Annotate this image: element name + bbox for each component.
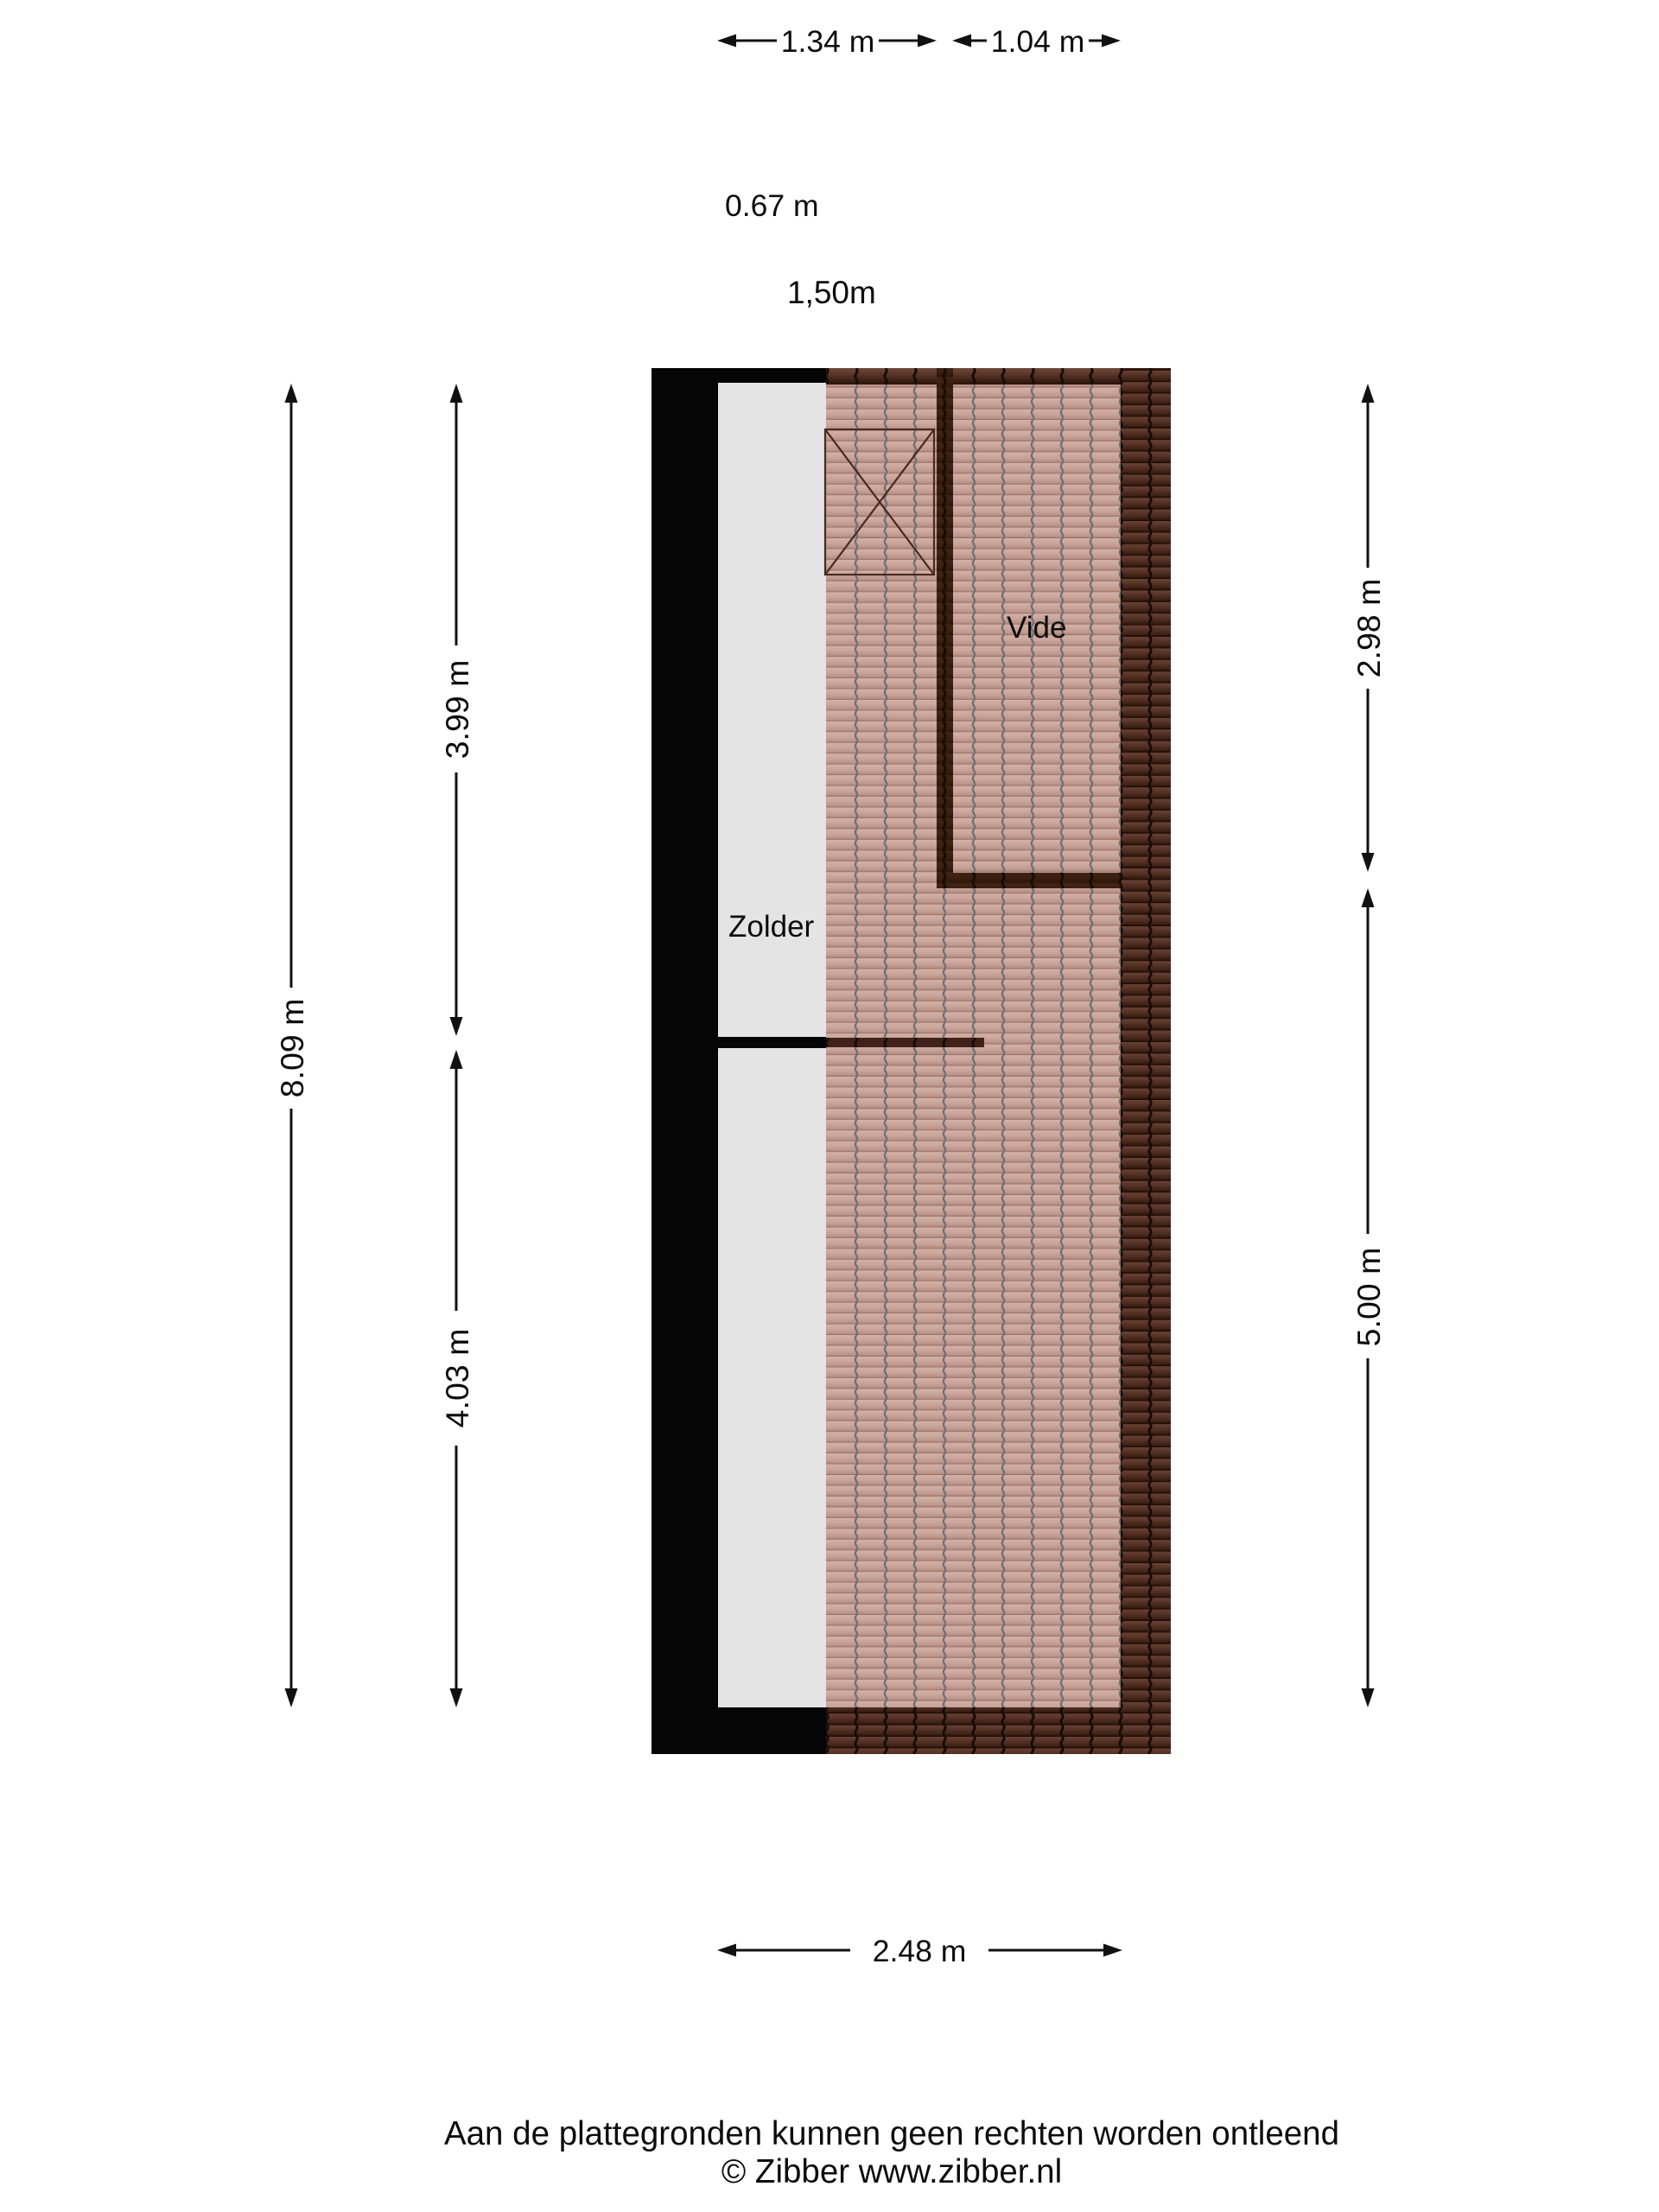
svg-text:Zolder: Zolder — [728, 910, 815, 944]
svg-text:3.99 m: 3.99 m — [439, 660, 475, 760]
svg-text:Vide: Vide — [1007, 611, 1066, 645]
svg-text:1,50m: 1,50m — [787, 275, 876, 310]
svg-text:4.03 m: 4.03 m — [439, 1329, 475, 1428]
svg-text:2.48 m: 2.48 m — [873, 1934, 967, 1968]
svg-text:Aan de plattegronden kunnen ge: Aan de plattegronden kunnen geen rechten… — [444, 2115, 1339, 2152]
svg-text:2.98 m: 2.98 m — [1351, 579, 1387, 678]
svg-text:© Zibber www.zibber.nl: © Zibber www.zibber.nl — [721, 2153, 1062, 2190]
svg-text:8.09 m: 8.09 m — [274, 999, 310, 1098]
svg-text:0.67 m: 0.67 m — [725, 188, 819, 223]
svg-text:1.34 m: 1.34 m — [781, 24, 875, 59]
svg-text:5.00 m: 5.00 m — [1351, 1248, 1387, 1347]
svg-text:1.04 m: 1.04 m — [991, 24, 1085, 59]
